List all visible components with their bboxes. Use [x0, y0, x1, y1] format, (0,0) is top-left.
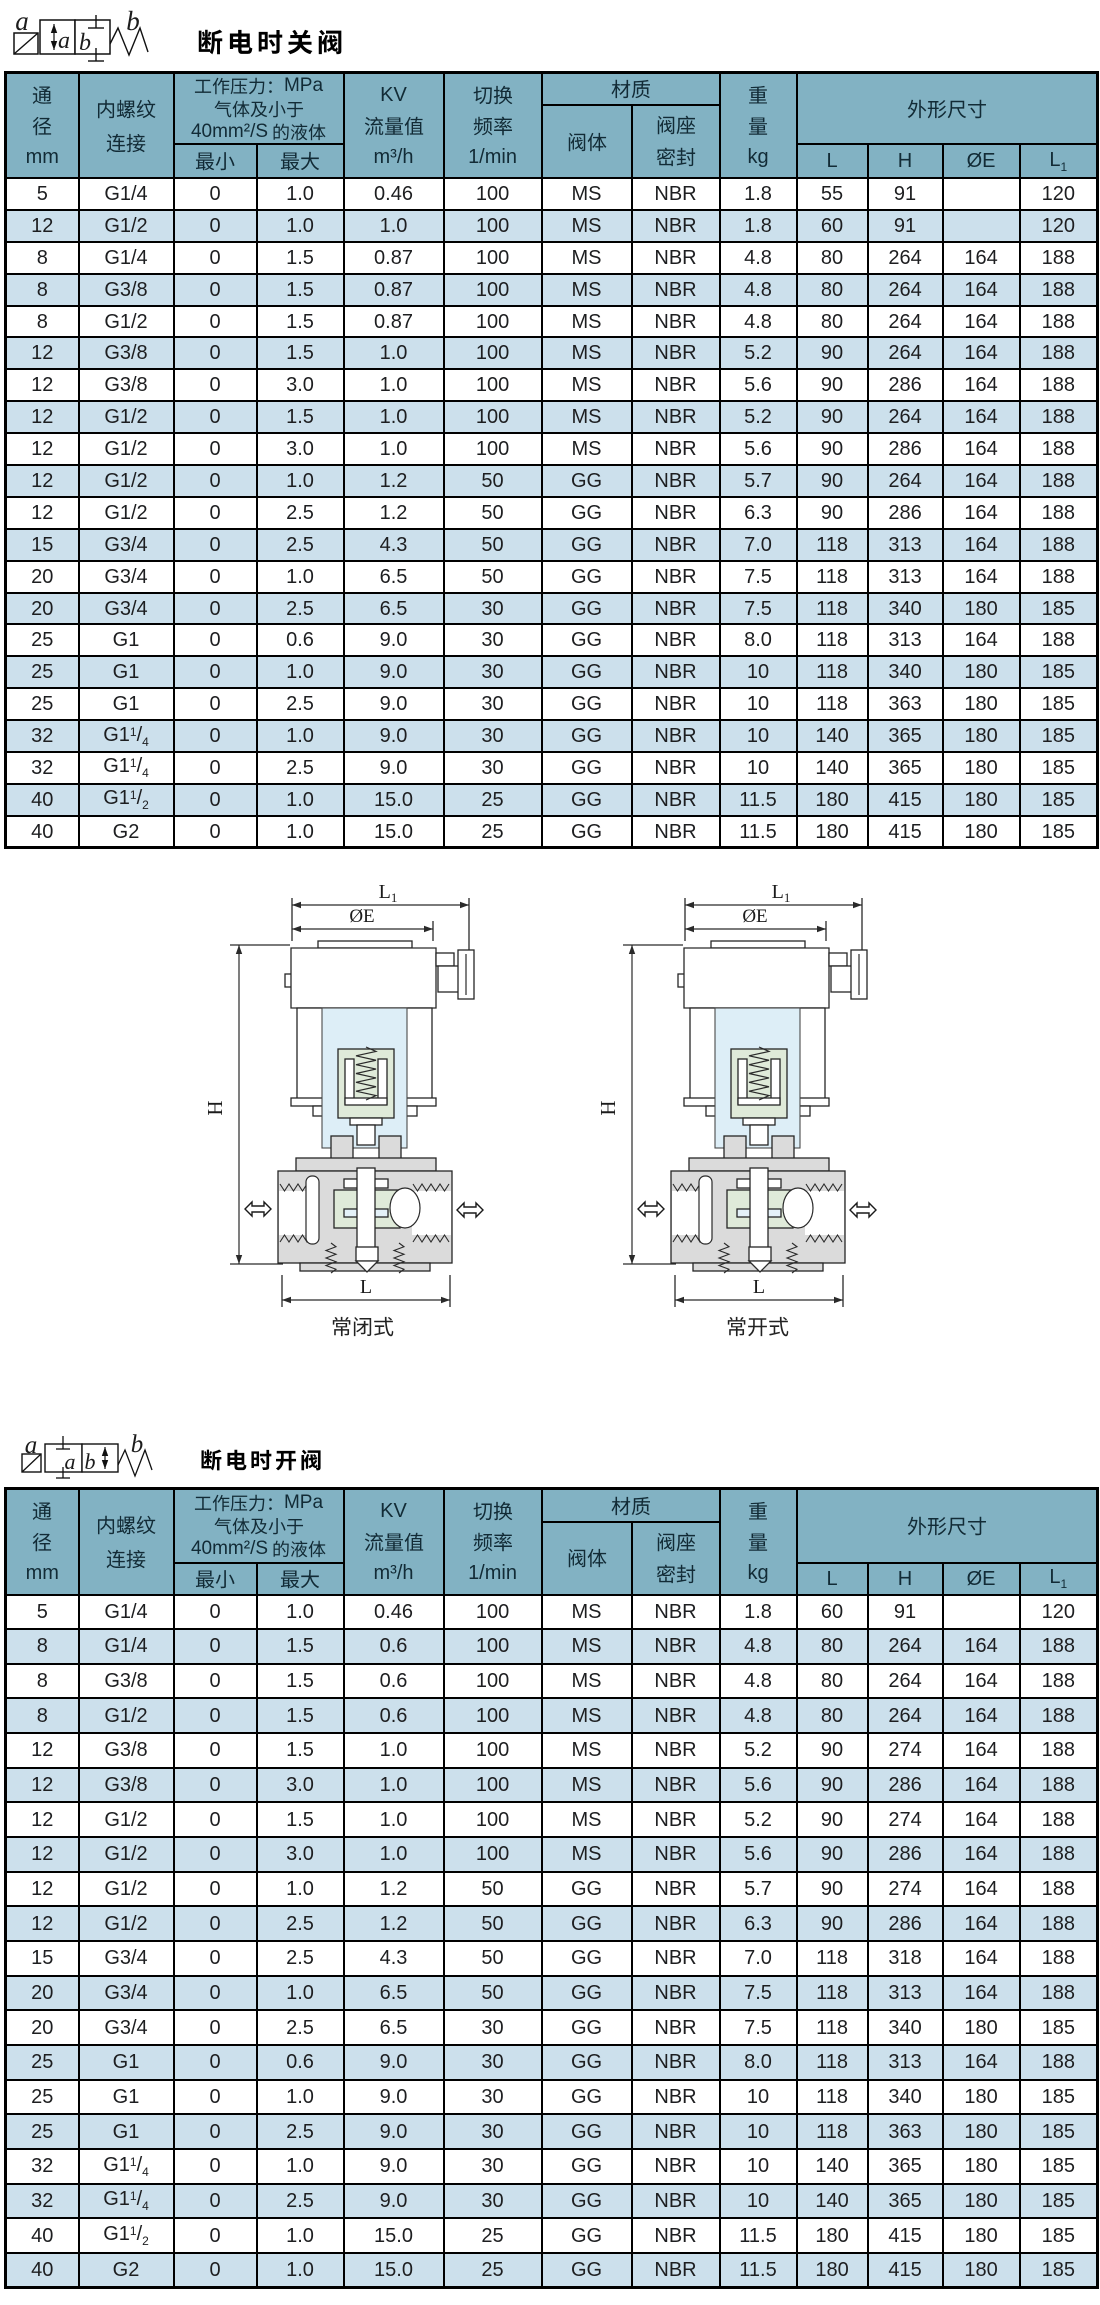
svg-text:H: H: [596, 1100, 620, 1115]
svg-text:L1: L1: [772, 881, 791, 905]
svg-text:a: a: [15, 6, 29, 36]
svg-text:b: b: [126, 6, 140, 36]
svg-text:L: L: [753, 1276, 765, 1298]
svg-text:H: H: [203, 1100, 227, 1115]
svg-text:a: a: [58, 28, 70, 54]
svg-text:b: b: [131, 1431, 144, 1458]
svg-text:ØE: ØE: [349, 906, 374, 927]
svg-text:b: b: [85, 1449, 96, 1474]
svg-text:L1: L1: [379, 881, 398, 905]
svg-text:ØE: ØE: [742, 906, 767, 927]
svg-text:b: b: [79, 30, 91, 56]
svg-text:a: a: [65, 1449, 76, 1474]
svg-text:L: L: [360, 1276, 372, 1298]
